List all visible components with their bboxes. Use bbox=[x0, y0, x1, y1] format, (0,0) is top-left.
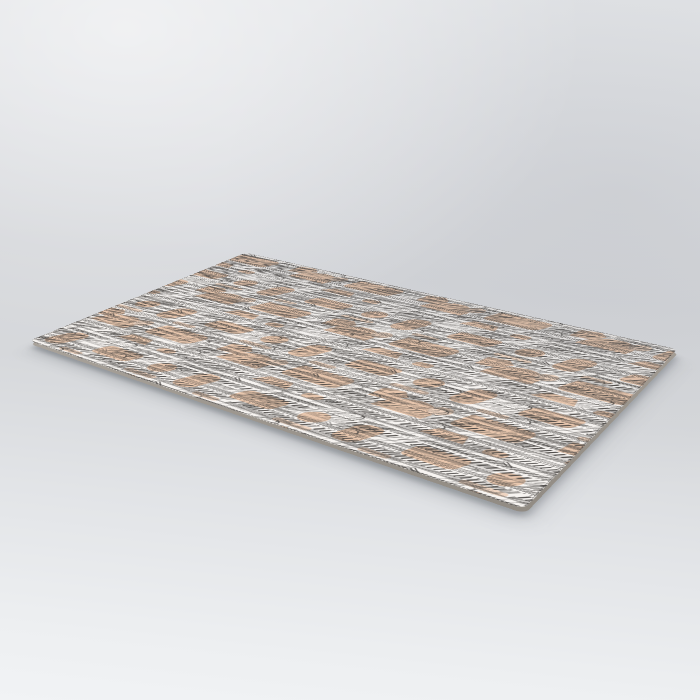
product-photo bbox=[0, 0, 700, 700]
